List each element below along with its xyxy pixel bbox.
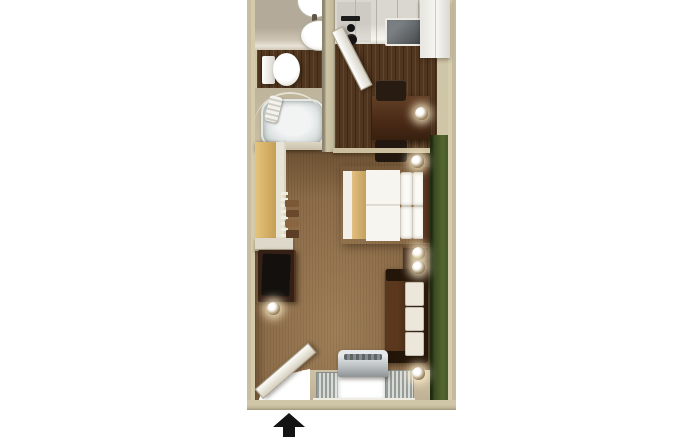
wood-carpet-transition xyxy=(333,148,432,153)
wall-sconce-desk xyxy=(415,107,428,120)
closet-shelf-towels xyxy=(285,200,299,240)
ptac-ac-unit xyxy=(338,350,388,377)
sofa-cushion xyxy=(405,282,424,306)
window-blinds-right xyxy=(385,370,414,400)
refrigerator xyxy=(420,0,450,58)
entrance-arrow xyxy=(273,413,305,437)
cooktop-control-bar xyxy=(341,16,360,21)
wall-sconce-bed-head xyxy=(411,155,424,168)
wall-sconce-window xyxy=(412,367,425,380)
towel-stack-item xyxy=(285,200,299,207)
bathroom-kitchen-wall xyxy=(322,0,335,152)
chair-north xyxy=(376,80,406,101)
wall-sconce-dresser xyxy=(267,302,280,315)
tv xyxy=(261,254,290,297)
wall-sconce-nightstand-2 xyxy=(412,261,425,274)
ac-vent xyxy=(344,354,382,360)
queen-bed xyxy=(341,166,433,244)
towel-stack-item xyxy=(285,220,299,227)
window-glass xyxy=(338,374,385,400)
floor-plan-image xyxy=(0,0,700,437)
sofa xyxy=(385,269,428,363)
sofa-cushion xyxy=(405,332,424,356)
entrance-arrow-stem xyxy=(283,426,295,437)
bottom-wall xyxy=(247,400,456,410)
bed-duvet xyxy=(366,170,400,241)
sofa-cushion xyxy=(405,307,424,331)
green-accent-wall xyxy=(430,135,448,402)
kitchen-sink xyxy=(385,18,423,46)
bed-runner xyxy=(352,171,366,239)
burner-small xyxy=(347,24,355,32)
floorplan xyxy=(247,0,456,410)
toilet-bowl xyxy=(273,53,300,86)
towel-stack-item xyxy=(286,230,299,238)
entrance-arrow-head xyxy=(273,413,305,427)
towel-stack-item xyxy=(286,210,299,217)
wall-sconce-nightstand-1 xyxy=(412,247,425,260)
closet-panel xyxy=(255,142,276,240)
